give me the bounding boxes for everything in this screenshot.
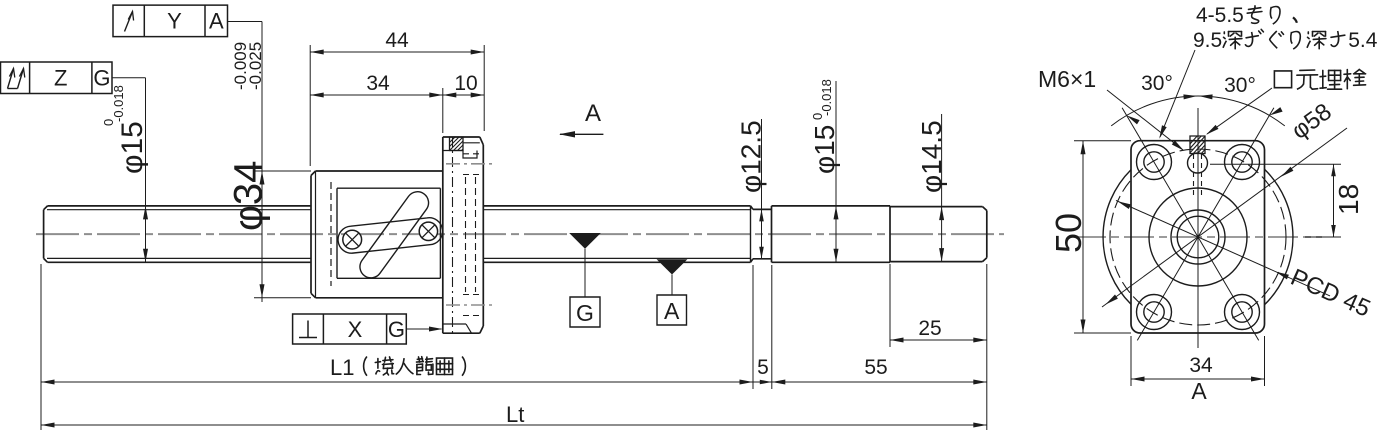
svg-text:φ58: φ58	[1287, 98, 1337, 145]
svg-text:G: G	[93, 66, 110, 91]
svg-text:G: G	[576, 300, 594, 326]
svg-text:-0.018: -0.018	[111, 85, 126, 122]
svg-text:G: G	[388, 317, 405, 342]
svg-text:Z: Z	[54, 66, 67, 91]
svg-text:φ15: φ15	[116, 121, 149, 174]
svg-text:Lt: Lt	[506, 402, 524, 427]
svg-text:A: A	[209, 9, 224, 34]
svg-text:4-5.5: 4-5.5	[1196, 4, 1244, 27]
svg-text:10: 10	[454, 72, 477, 95]
svg-text:9.5: 9.5	[1193, 29, 1222, 52]
svg-text:φ14.5: φ14.5	[916, 120, 947, 193]
svg-text:φ15: φ15	[809, 125, 840, 174]
svg-text:34: 34	[366, 72, 390, 95]
svg-text:A: A	[664, 298, 680, 324]
svg-text:44: 44	[385, 29, 409, 52]
svg-text:φ12.5: φ12.5	[736, 120, 767, 193]
svg-text:φ34: φ34	[227, 161, 271, 231]
svg-text:30°: 30°	[1224, 74, 1256, 97]
svg-text:55: 55	[864, 356, 887, 379]
svg-text:-0.018: -0.018	[819, 79, 834, 116]
svg-text:-0.025: -0.025	[246, 42, 265, 90]
svg-text:L1: L1	[330, 355, 354, 380]
svg-text:X: X	[348, 317, 363, 342]
svg-text:18: 18	[1333, 184, 1364, 215]
svg-text:30°: 30°	[1141, 72, 1173, 95]
svg-text:PCD 45: PCD 45	[1287, 264, 1375, 323]
svg-text:A: A	[585, 100, 601, 127]
svg-text:34: 34	[1189, 354, 1213, 377]
svg-text:5: 5	[757, 356, 769, 379]
svg-text:M6×1: M6×1	[1038, 66, 1096, 92]
svg-text:A: A	[1191, 378, 1207, 404]
svg-text:5.4: 5.4	[1348, 29, 1378, 52]
svg-text:Y: Y	[167, 9, 182, 34]
svg-text:25: 25	[918, 317, 941, 340]
svg-text:50: 50	[1048, 213, 1089, 253]
